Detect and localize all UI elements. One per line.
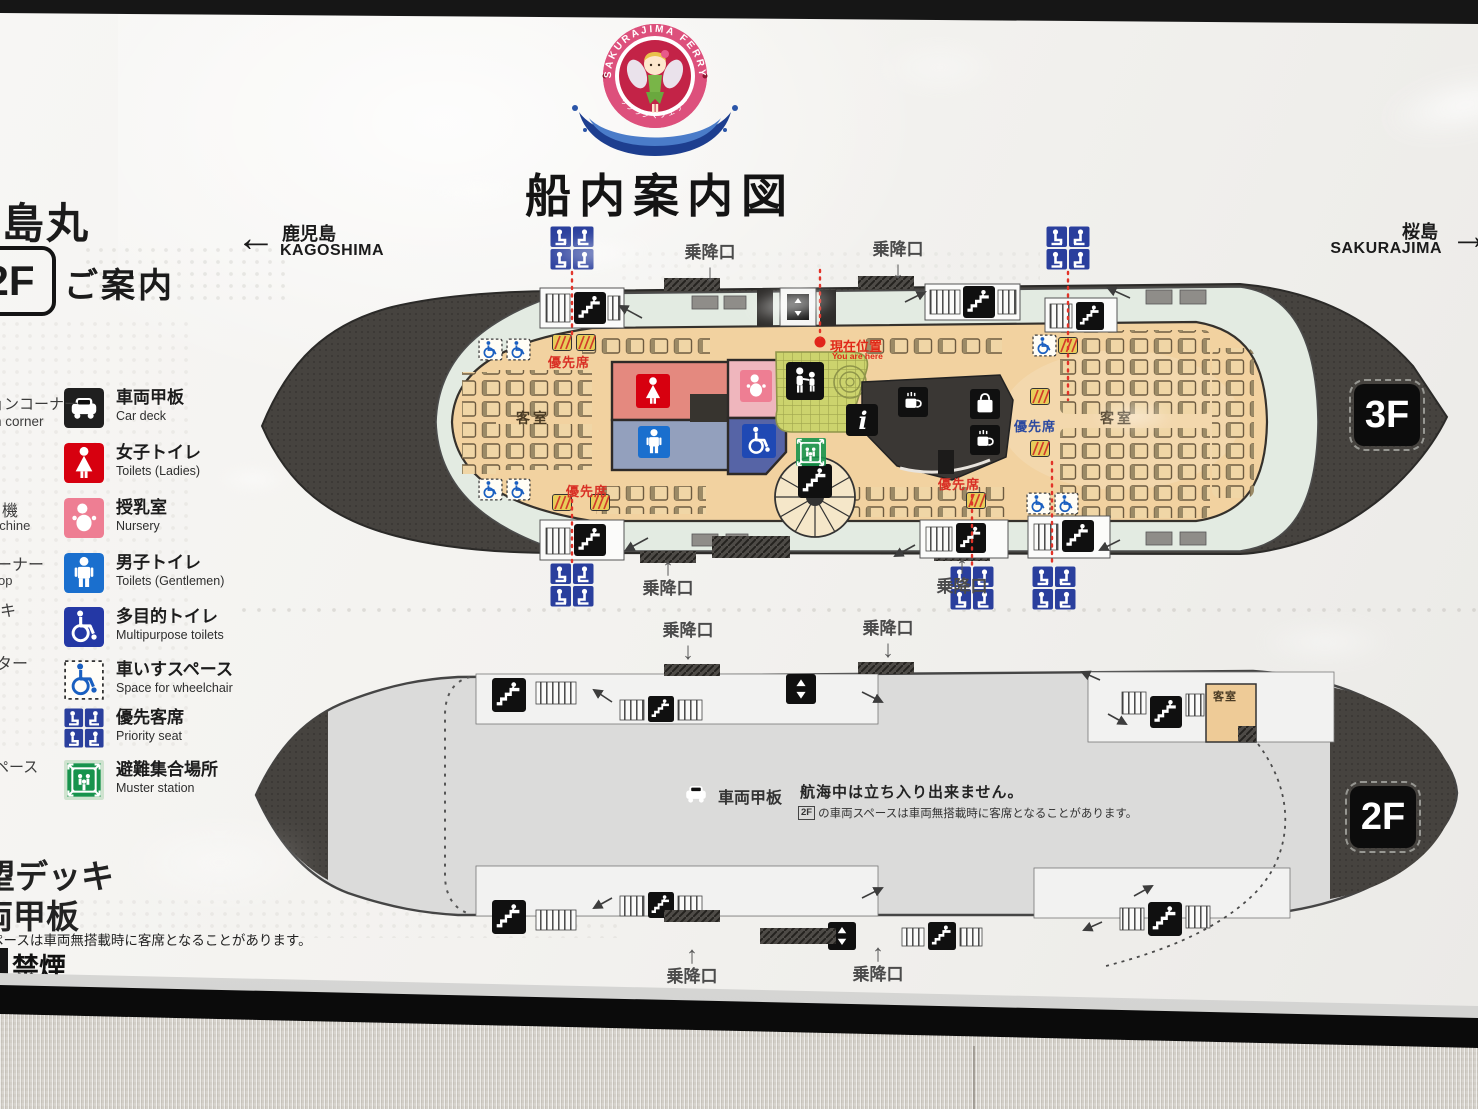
stairs-icon: [648, 696, 674, 722]
kids-room-icon: [786, 362, 824, 400]
legend-item-ladies-toilet: 女子トイレ Toilets (Ladies): [64, 443, 201, 483]
legend-item-nursery: 授乳室 Nursery: [64, 498, 167, 538]
priority-seat-sign-icon: [1046, 226, 1090, 270]
stairs-icon: [574, 524, 606, 556]
floor-badge-3f: 3F: [1349, 379, 1425, 451]
notice-no-entry: 航海中は立ち入り出来ません。: [800, 781, 1024, 802]
baby-icon: [64, 498, 104, 538]
notice-vehicle-space: 2F の車両スペースは車両無搭載時に客席となることがあります。: [798, 805, 1137, 821]
priority-seat-sign-icon: [550, 563, 594, 607]
cutoff-text: op: [0, 573, 12, 588]
drink-icon: [970, 425, 1000, 455]
cutoff-text: キ: [0, 597, 16, 621]
cutoff-kanji-fragment: [0, 948, 8, 974]
priority-seat-label: 優先席: [548, 352, 590, 371]
stairs-icon: [1076, 302, 1104, 330]
arrow-up-icon: ↑: [838, 942, 918, 966]
cutoff-text: ター: [0, 650, 28, 674]
boarding-gate-label: ↑乗降口: [922, 554, 1002, 596]
stairs-icon: [963, 286, 995, 318]
floor-badge-2f: 2F: [1345, 781, 1421, 853]
cafe-icon: [898, 387, 928, 417]
legend-item-muster-station: 避難集合場所 Muster station: [64, 760, 218, 800]
rooms-3f: [612, 360, 786, 474]
female-icon: [64, 443, 104, 483]
cabin-label: 客室: [1100, 408, 1134, 428]
wheelchair-icon: [64, 607, 104, 647]
arrow-down-icon: ↓: [648, 640, 728, 664]
male-icon: [64, 553, 104, 593]
muster-icon: [64, 760, 104, 800]
legend-label: 車両甲板: [116, 388, 184, 408]
boarding-gate-label: ↑乗降口: [652, 944, 732, 986]
cabin-label-2f: 客室: [1213, 688, 1237, 704]
car-deck-label: 車両甲板: [718, 784, 782, 808]
wall-seam: [973, 1046, 975, 1109]
arrow-down-icon: ↓: [670, 262, 750, 286]
arrow-down-icon: ↓: [848, 638, 928, 662]
stairs-icon: [798, 464, 832, 498]
boarding-gate-label: 乗降口↓: [648, 622, 728, 664]
you-are-here-en: You are here: [832, 351, 883, 361]
priority-seat-label: 優先席: [938, 474, 980, 493]
boarding-gate-label: ↑乗降口: [838, 942, 918, 984]
boarding-gate-label: 乗降口↓: [858, 241, 938, 283]
cutoff-text: ションコーナー: [0, 393, 79, 414]
cutoff-text: achine: [0, 518, 30, 533]
arrow-up-icon: ↑: [922, 554, 1002, 578]
boarding-gate-label: ↑乗降口: [628, 556, 708, 598]
stairs-icon: [1150, 696, 1182, 728]
notice-2f-badge: 2F: [798, 806, 815, 819]
legend-item-gents-toilet: 男子トイレ Toilets (Gentlemen): [64, 553, 224, 593]
stairs-icon: [574, 292, 606, 324]
priority-seat-label: 優先席: [1014, 416, 1056, 435]
priority-seat-label: 優先席: [566, 481, 608, 500]
priority-seat-sign-icon: [550, 226, 594, 270]
ferry-guide-sign-photo: SAKURAJIMA FERRY サクラジマフェリー 船内案内図 桜島丸 2F …: [0, 0, 1478, 1109]
stairs-icon: [1062, 520, 1094, 552]
stairs-icon: [928, 922, 956, 950]
arrow-down-icon: ↓: [858, 259, 938, 283]
cutoff-text: n corner: [0, 414, 44, 429]
legend-item-multipurpose-toilet: 多目的トイレ Multipurpose toilets: [64, 607, 224, 647]
cabin-label: 客室: [516, 408, 550, 428]
shop-icon: [970, 389, 1000, 419]
cutoff-text: ペース: [0, 756, 38, 777]
cutoff-text: ーナー: [0, 551, 44, 575]
stairs-icon: [492, 900, 526, 934]
arrow-up-icon: ↑: [652, 944, 732, 968]
priority-seat-icon: [64, 708, 104, 748]
elevator-icon: [786, 674, 816, 704]
priority-seat-sign-icon: [1032, 566, 1076, 610]
legend-item-priority-seat: 優先客席 Priority seat: [64, 708, 184, 748]
legend-item-wheelchair-space: 車いすスペース Space for wheelchair: [64, 660, 233, 700]
boarding-gate-label: 乗降口↓: [848, 620, 928, 662]
boarding-gate-label: 乗降口↓: [670, 244, 750, 286]
muster-station-floor-icon: [796, 438, 826, 466]
legend-item-car-deck: 車両甲板 Car deck: [64, 388, 184, 428]
spiral-stairs: [775, 457, 855, 537]
stairs-icon: [1148, 902, 1182, 936]
arrow-up-icon: ↑: [628, 556, 708, 580]
information-icon: [846, 404, 878, 436]
deck-3f: [262, 226, 1447, 610]
stairs-icon: [492, 678, 526, 712]
wheelchair-space-icon: [64, 660, 104, 700]
